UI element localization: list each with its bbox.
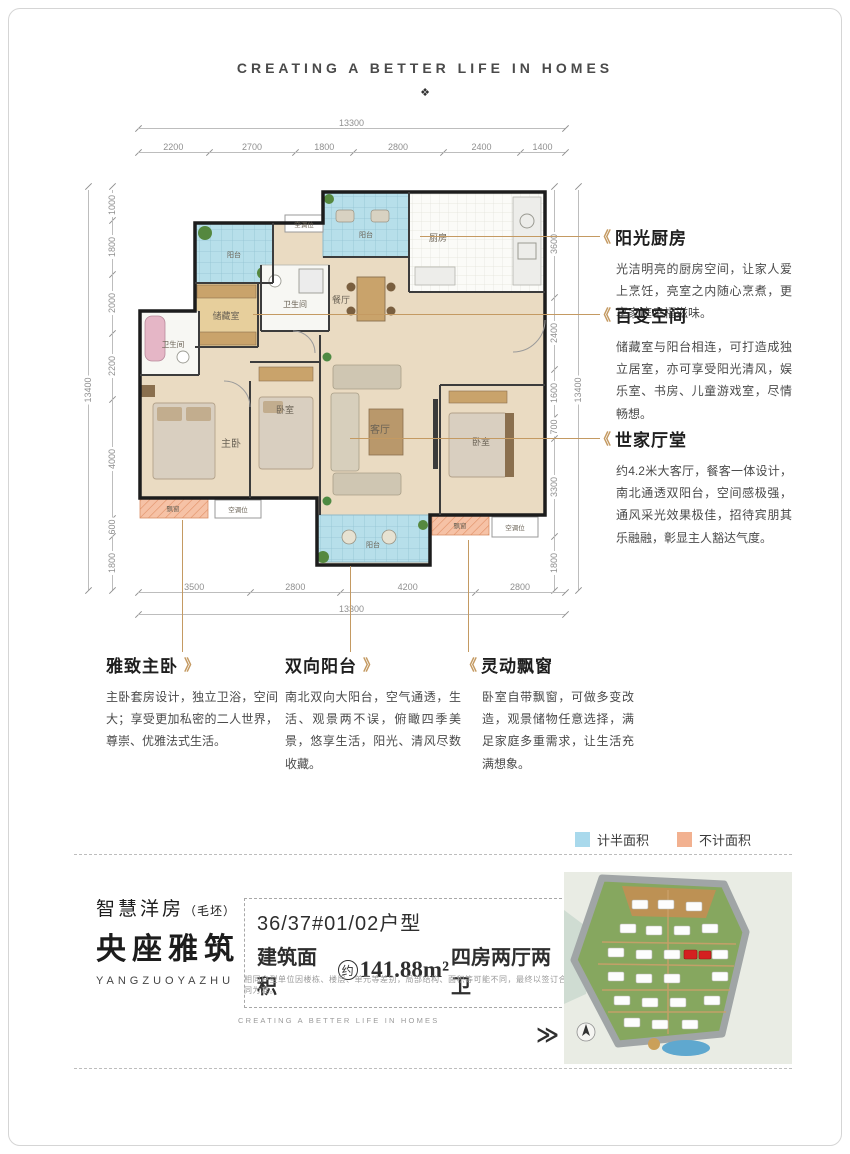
callout-title: 阳光厨房 — [615, 224, 687, 249]
brand-pinyin: YANGZUOYAZHU — [96, 975, 240, 987]
compass-icon — [577, 1023, 595, 1041]
callout-body: 南北双向大阳台，空气通透，生活、观景两不误，俯瞰四季美景，悠享生活，阳光、清风尽… — [285, 686, 461, 775]
label-balcony-topcenter: 阳台 — [359, 230, 373, 239]
callout-master: 雅致主卧》 主卧套房设计，独立卫浴，空间大；享受更加私密的二人世界，尊崇、优雅法… — [106, 652, 278, 753]
landscape-node — [648, 1038, 660, 1050]
dim-value: 2200 — [161, 143, 185, 152]
dim-value: 1800 — [312, 143, 336, 152]
site-plan-map — [564, 872, 792, 1064]
dim-left-total: 13400 — [80, 190, 96, 590]
chevron-right-icon: 》 — [184, 654, 197, 675]
chevron-left-icon: 《 — [596, 226, 609, 247]
dim-value: 4200 — [396, 583, 420, 592]
flyer-page: CREATING A BETTER LIFE IN HOMES ❖ 13300 … — [0, 0, 850, 1154]
dim-value: 1400 — [531, 143, 555, 152]
brand-block: 智慧洋房（毛坯） 央座雅筑 YANGZUOYAZHU — [96, 894, 240, 987]
label-bay-left: 飘窗 — [167, 504, 180, 513]
leader-flex — [253, 314, 600, 315]
label-balcony-topleft: 阳台 — [227, 250, 241, 259]
dim-bottom-total: 13300 — [138, 602, 565, 618]
callout-body: 卧室自带飘窗，可做多变改造，观景储物任意选择，满足家庭多重需求，让生活充满想象。 — [482, 686, 634, 775]
excluded-area-swatch-icon — [677, 832, 692, 847]
label-bath-left: 卫生间 — [162, 339, 185, 349]
callout-title: 双向阳台 — [285, 652, 357, 677]
disclaimer-text: 相同户型单位因楼栋、楼层、单元等差别，局部结构、面积等可能不同，最终以签订合同为… — [244, 974, 574, 996]
dim-value: 2200 — [108, 354, 117, 378]
dim-value: 13400 — [84, 375, 93, 404]
dim-value: 2800 — [283, 583, 307, 592]
dim-right-total: 13400 — [570, 190, 586, 590]
callout-title: 雅致主卧 — [106, 652, 178, 677]
dim-value: 13300 — [337, 119, 366, 128]
dashed-divider-bottom — [74, 1068, 792, 1069]
dim-top-segments: 2200 2700 1800 2800 2400 1400 — [138, 140, 565, 156]
chevron-left-icon: 《 — [462, 654, 475, 675]
dim-value: 600 — [108, 518, 117, 537]
header-tagline: CREATING A BETTER LIFE IN HOMES — [0, 60, 850, 76]
dim-value: 13300 — [337, 605, 366, 614]
dim-value: 3500 — [182, 583, 206, 592]
dim-value: 2000 — [108, 291, 117, 315]
floor-plan: 空调位 阳台 阳台 厨房 卫生间 餐厅 储藏室 卫生间 主卧 卧室 客厅 卧室 … — [133, 185, 563, 575]
label-ac-bottom-left: 空调位 — [228, 505, 248, 514]
legend-label: 不计面积 — [699, 830, 751, 849]
legend-label: 计半面积 — [597, 830, 649, 849]
callout-flex: 《百变空间 储藏室与阳台相连，可打造成独立居室，亦可享受阳光清风，娱乐室、书房、… — [596, 302, 792, 425]
dim-value: 1800 — [108, 551, 117, 575]
callout-title: 百变空间 — [615, 302, 687, 327]
leader-bay — [468, 540, 469, 652]
label-living: 客厅 — [370, 423, 390, 436]
dim-value: 1000 — [108, 193, 117, 217]
chevron-left-icon: 《 — [596, 304, 609, 325]
dim-value: 13400 — [574, 375, 583, 404]
legend: 计半面积 不计面积 — [575, 830, 751, 849]
room-balcony-topcenter — [323, 192, 409, 257]
chevron-left-icon: 《 — [596, 428, 609, 449]
compass-ornament-icon: ❖ — [0, 86, 850, 99]
callout-living: 《世家厅堂 约4.2米大客厅，餐客一体设计，南北通透双阳台，空间感极强，通风采光… — [596, 426, 792, 549]
legend-item-excluded: 不计面积 — [677, 830, 751, 849]
dim-value: 2800 — [386, 143, 410, 152]
brand-line1: 智慧洋房 — [96, 899, 184, 920]
dashed-divider-top — [74, 854, 792, 855]
legend-item-half: 计半面积 — [575, 830, 649, 849]
callout-body: 储藏室与阳台相连，可打造成独立居室，亦可享受阳光清风，娱乐室、书房、儿童游戏室，… — [616, 336, 792, 425]
callout-title: 灵动飘窗 — [481, 652, 553, 677]
callout-body: 主卧套房设计，独立卫浴，空间大；享受更加私密的二人世界，尊崇、优雅法式生活。 — [106, 686, 278, 753]
label-storage: 储藏室 — [212, 310, 239, 321]
dim-top-total: 13300 — [138, 116, 565, 132]
dim-left-segments: 1000 1800 2000 2200 4000 600 1800 — [104, 190, 120, 590]
callout-bay: 《灵动飘窗 卧室自带飘窗，可做多变改造，观景储物任意选择，满足家庭多重需求，让生… — [462, 652, 634, 775]
room-balcony-bottom — [317, 515, 430, 563]
leader-master — [182, 520, 183, 652]
dim-value: 1800 — [108, 235, 117, 259]
brand-name: 央座雅筑 — [96, 924, 240, 968]
label-bay-right: 飘窗 — [454, 521, 467, 530]
callout-title: 世家厅堂 — [615, 426, 687, 451]
callout-balcony: 双向阳台》 南北双向大阳台，空气通透，生活、观景两不误，俯瞰四季美景，悠享生活，… — [285, 652, 461, 775]
chevron-right-icon: 》 — [363, 654, 376, 675]
callout-body: 约4.2米大客厅，餐客一体设计，南北通透双阳台，空间感极强，通风采光效果极佳，招… — [616, 460, 792, 549]
label-master: 主卧 — [221, 437, 241, 450]
label-bath-top: 卫生间 — [283, 299, 307, 309]
dim-value: 2400 — [470, 143, 494, 152]
footer-tagline: CREATING A BETTER LIFE IN HOMES — [238, 1016, 439, 1025]
label-dining: 餐厅 — [332, 294, 350, 305]
dim-value: 4000 — [108, 447, 117, 471]
leader-living — [350, 438, 600, 439]
leader-kitchen — [420, 236, 600, 237]
label-ac-top: 空调位 — [294, 220, 314, 229]
room-bath-top — [261, 265, 329, 331]
half-area-swatch-icon — [575, 832, 590, 847]
dim-value: 2800 — [508, 583, 532, 592]
pond — [662, 1040, 710, 1056]
dim-value: 2700 — [240, 143, 264, 152]
label-kitchen: 厨房 — [429, 232, 447, 243]
label-balcony-bottom: 阳台 — [366, 540, 380, 549]
label-ac-bottom-right: 空调位 — [505, 523, 525, 532]
label-bedroom-center: 卧室 — [276, 404, 294, 415]
leader-balcony — [350, 566, 351, 652]
unit-number: 36/37#01/02户型 — [257, 907, 569, 936]
brand-line1-suffix: （毛坯） — [184, 904, 236, 918]
dim-bottom-segments: 3500 2800 4200 2800 — [138, 580, 565, 596]
double-chevron-icon: ≫ — [536, 1022, 559, 1048]
